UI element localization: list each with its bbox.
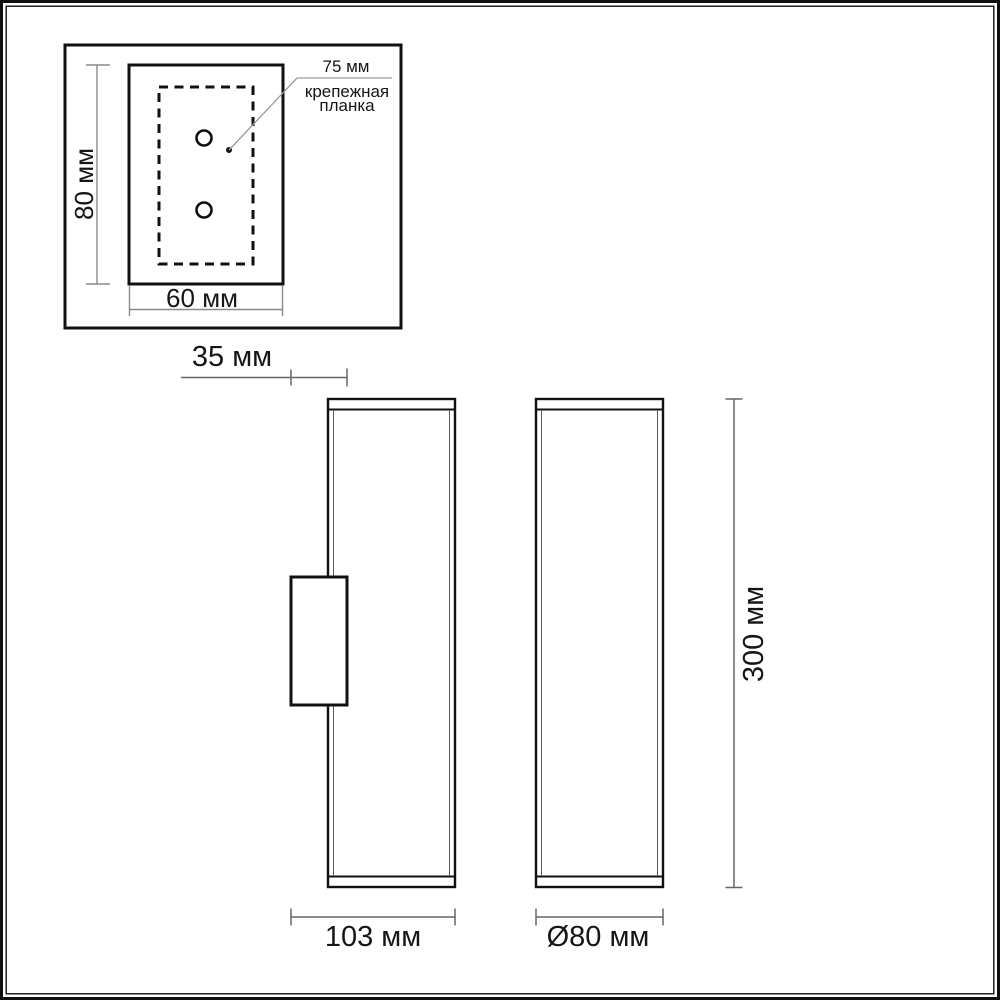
mounting-hole-top <box>197 131 212 146</box>
bracket-length-label: 75 мм <box>286 60 406 74</box>
bracket-note-label: крепежная планка <box>277 85 417 113</box>
technical-drawing-page: 80 мм 60 мм 75 мм крепежная планка 35 мм… <box>0 0 1000 1000</box>
page-frame-outer <box>2 2 999 999</box>
detail-width-label: 60 мм <box>142 283 262 314</box>
bracket-dashed-outline <box>159 87 253 264</box>
front-view-body <box>536 399 663 887</box>
diameter-label: Ø80 мм <box>518 921 678 954</box>
lamp-side-view <box>291 399 455 887</box>
mounting-plate-outline <box>129 65 283 284</box>
height-label: 300 мм <box>739 554 769 714</box>
total-depth-label: 103 мм <box>293 921 453 954</box>
bracket-depth-label: 35 мм <box>162 341 302 374</box>
wall-bracket-block <box>291 577 347 705</box>
mounting-hole-bottom <box>197 203 212 218</box>
detail-height-label: 80 мм <box>71 124 97 244</box>
drawing-canvas <box>0 0 1000 1000</box>
page-frame-inner <box>6 6 994 994</box>
lamp-front-view <box>536 399 663 887</box>
